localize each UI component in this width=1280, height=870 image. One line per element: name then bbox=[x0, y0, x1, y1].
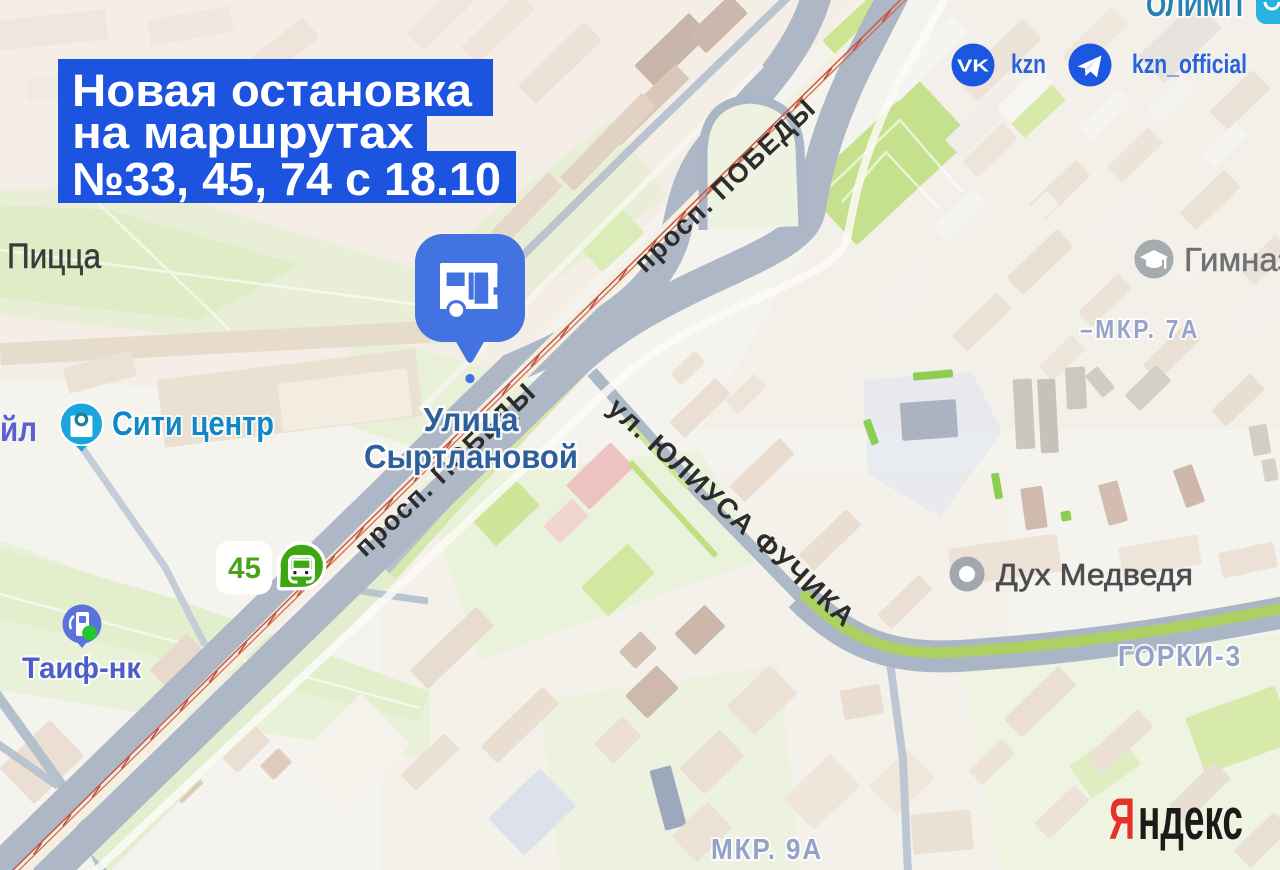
svg-text:ндекс: ндекс bbox=[1138, 787, 1243, 852]
svg-text:Сыртлановой: Сыртлановой bbox=[364, 438, 578, 475]
svg-text:ОЛИМП: ОЛИМП bbox=[1146, 0, 1243, 23]
svg-text:VK: VK bbox=[957, 56, 989, 76]
svg-text:Дух Медведя: Дух Медведя bbox=[996, 557, 1193, 592]
svg-text:на маршрутах: на маршрутах bbox=[72, 107, 414, 158]
svg-text:МКР. 9А: МКР. 9А bbox=[711, 834, 823, 866]
svg-text:Я: Я bbox=[1109, 787, 1135, 852]
svg-text:№33, 45, 74 с 18.10: №33, 45, 74 с 18.10 bbox=[72, 153, 501, 205]
svg-text:45: 45 bbox=[228, 552, 261, 585]
svg-text:–МКР. 7А: –МКР. 7А bbox=[1080, 314, 1200, 344]
svg-text:Гимназ: Гимназ bbox=[1184, 241, 1280, 278]
svg-text:ГОРКИ-3: ГОРКИ-3 bbox=[1118, 641, 1242, 673]
svg-text:Улица: Улица bbox=[424, 401, 520, 438]
svg-text:йл: йл bbox=[0, 410, 37, 449]
svg-text:kzn_official: kzn_official bbox=[1132, 49, 1247, 79]
svg-text:Пицца: Пицца bbox=[7, 237, 101, 276]
svg-text:Сити центр: Сити центр bbox=[112, 405, 274, 443]
svg-text:kzn: kzn bbox=[1011, 49, 1046, 79]
svg-text:Таиф-нк: Таиф-нк bbox=[22, 652, 142, 685]
